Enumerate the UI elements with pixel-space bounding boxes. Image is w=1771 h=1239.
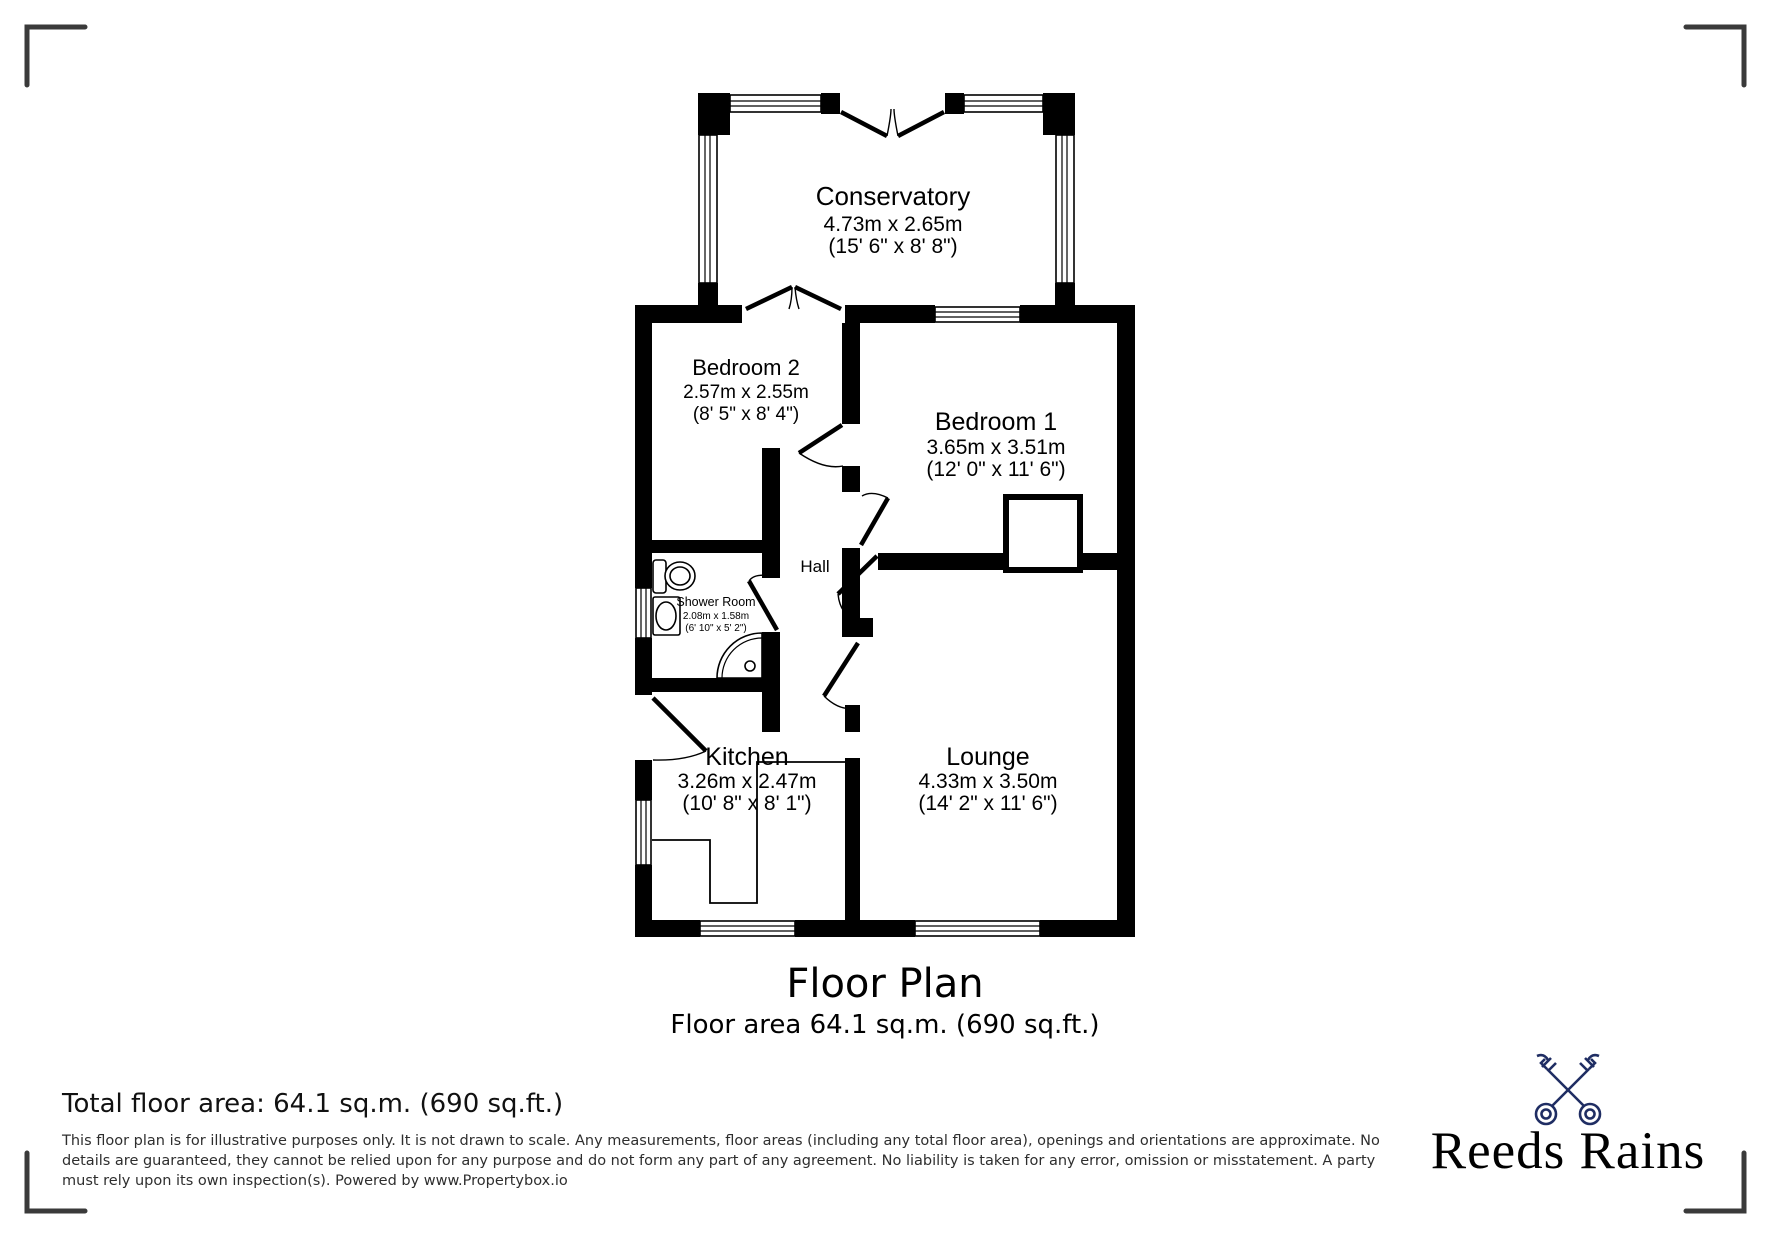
lounge-bottom-window bbox=[915, 921, 1040, 936]
bedroom2-imperial: (8' 5" x 8' 4") bbox=[693, 404, 799, 425]
toilet-icon bbox=[653, 560, 695, 593]
bedroom2-door bbox=[799, 425, 843, 467]
bedroom1-imperial: (12' 0" x 11' 6") bbox=[926, 458, 1065, 481]
kitchen-metric: 3.26m x 2.47m bbox=[678, 770, 817, 793]
disclaimer-line-3: must rely upon its own inspection(s). Po… bbox=[62, 1173, 568, 1189]
conservatory-window-top-right bbox=[964, 95, 1043, 112]
conservatory-label: Conservatory 4.73m x 2.65m (15' 6" x 8' … bbox=[816, 181, 971, 258]
lounge-label: Lounge 4.33m x 3.50m (14' 2" x 11' 6") bbox=[918, 743, 1057, 815]
house-conservatory-doors bbox=[746, 287, 841, 309]
lounge-metric: 4.33m x 3.50m bbox=[919, 770, 1058, 793]
conservatory-window-top-left bbox=[730, 95, 821, 112]
conservatory-window-right bbox=[1056, 135, 1074, 283]
disclaimer-line-1: This floor plan is for illustrative purp… bbox=[61, 1133, 1380, 1149]
built-in-cupboard bbox=[1006, 497, 1080, 570]
conservatory-name: Conservatory bbox=[816, 181, 971, 211]
bedroom2-name: Bedroom 2 bbox=[692, 355, 800, 380]
hall-label: Hall bbox=[800, 557, 829, 576]
shower-room-window bbox=[636, 588, 651, 638]
bedroom2-label: Bedroom 2 2.57m x 2.55m (8' 5" x 8' 4") bbox=[683, 355, 809, 425]
corner-mark-top-left bbox=[27, 27, 85, 85]
conservatory-imperial: (15' 6" x 8' 8") bbox=[828, 235, 957, 258]
conservatory-metric: 4.73m x 2.65m bbox=[824, 213, 963, 236]
kitchen-bottom-window bbox=[700, 921, 795, 936]
lounge-door bbox=[824, 643, 858, 709]
conservatory-window-left bbox=[699, 135, 717, 283]
kitchen-name: Kitchen bbox=[705, 743, 788, 771]
shower-imperial: (6' 10" x 5' 2") bbox=[685, 623, 747, 634]
page-title: Floor Plan bbox=[786, 961, 983, 1007]
shower-metric: 2.08m x 1.58m bbox=[683, 611, 749, 622]
disclaimer-line-2: details are guaranteed, they cannot be r… bbox=[62, 1153, 1376, 1169]
kitchen-side-window bbox=[636, 800, 651, 865]
shower-room-label: Shower Room 2.08m x 1.58m (6' 10" x 5' 2… bbox=[676, 595, 755, 634]
kitchen-imperial: (10' 8" x 8' 1") bbox=[682, 792, 811, 815]
crossed-keys-icon bbox=[1536, 1055, 1600, 1124]
conservatory-french-doors bbox=[841, 109, 944, 136]
brand-name: Reeds Rains bbox=[1431, 1122, 1706, 1180]
bedroom1-name: Bedroom 1 bbox=[935, 408, 1057, 436]
bedroom1-metric: 3.65m x 3.51m bbox=[927, 436, 1066, 459]
brand-logo: Reeds Rains bbox=[1431, 1055, 1706, 1180]
shower-name: Shower Room bbox=[676, 595, 755, 609]
lounge-imperial: (14' 2" x 11' 6") bbox=[918, 792, 1057, 815]
disclaimer: This floor plan is for illustrative purp… bbox=[61, 1133, 1380, 1189]
bedroom1-label: Bedroom 1 3.65m x 3.51m (12' 0" x 11' 6"… bbox=[926, 408, 1065, 481]
floorplan-page: Conservatory 4.73m x 2.65m (15' 6" x 8' … bbox=[0, 0, 1771, 1239]
kitchen-external-door bbox=[653, 698, 706, 760]
page-subtitle: Floor area 64.1 sq.m. (690 sq.ft.) bbox=[670, 1010, 1099, 1040]
bedroom2-metric: 2.57m x 2.55m bbox=[683, 382, 809, 403]
total-floor-area: Total floor area: 64.1 sq.m. (690 sq.ft.… bbox=[61, 1089, 563, 1119]
corner-shower-icon bbox=[717, 633, 762, 678]
corner-mark-top-right bbox=[1686, 27, 1744, 85]
bedroom1-top-window bbox=[935, 307, 1020, 322]
lounge-name: Lounge bbox=[946, 743, 1029, 771]
